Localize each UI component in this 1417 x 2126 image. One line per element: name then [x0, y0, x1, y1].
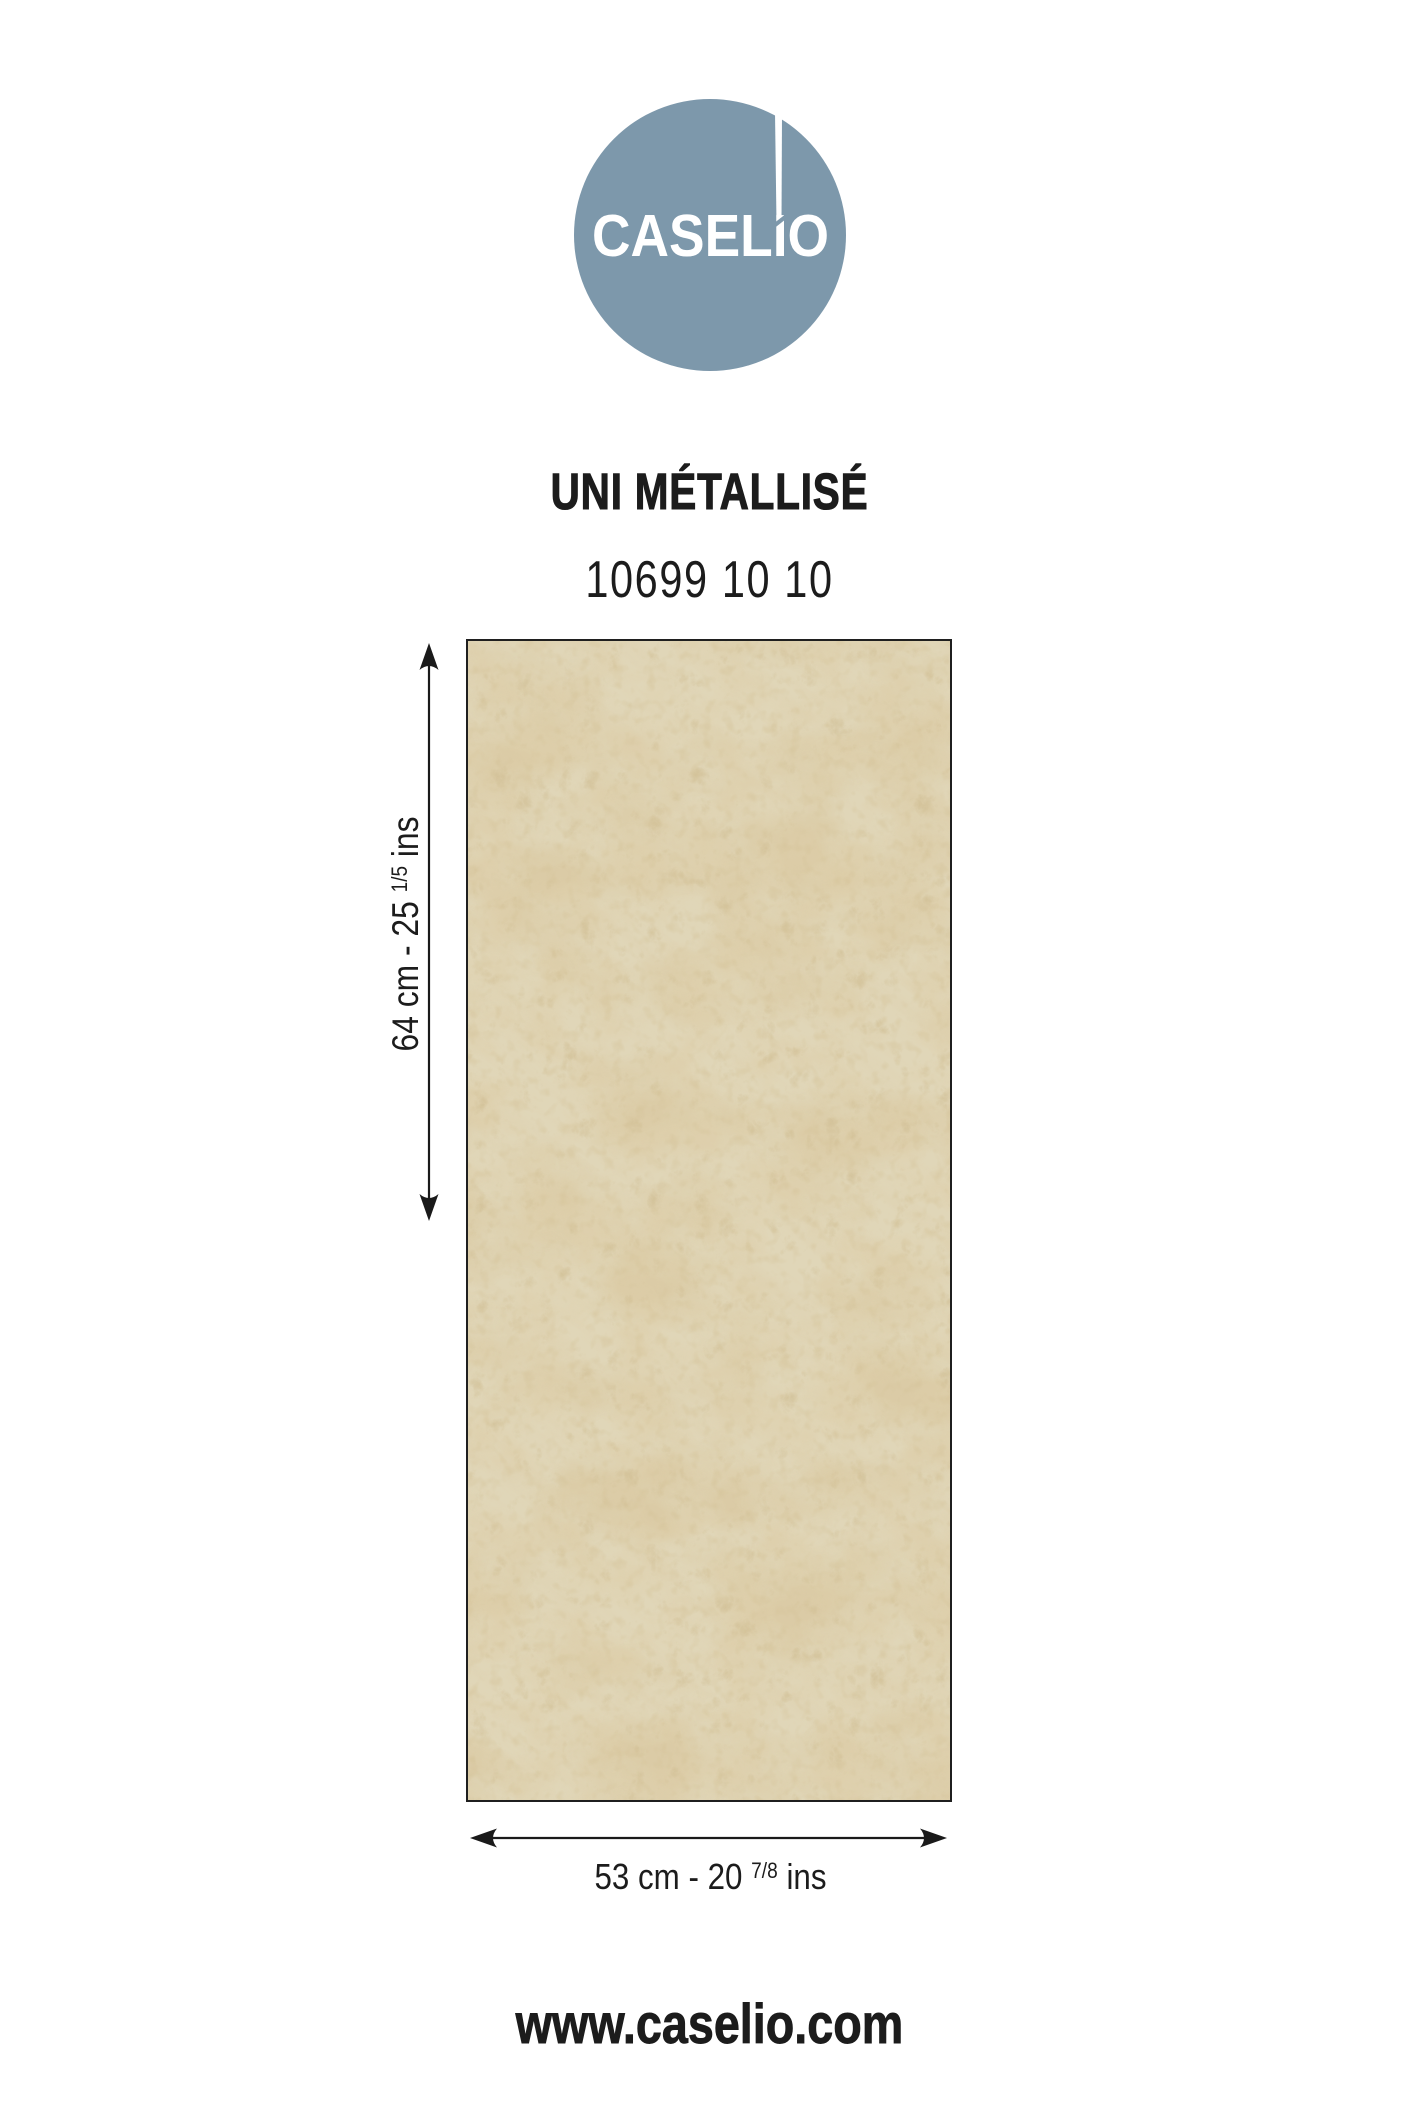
svg-text:CASELIO: CASELIO	[592, 203, 829, 269]
